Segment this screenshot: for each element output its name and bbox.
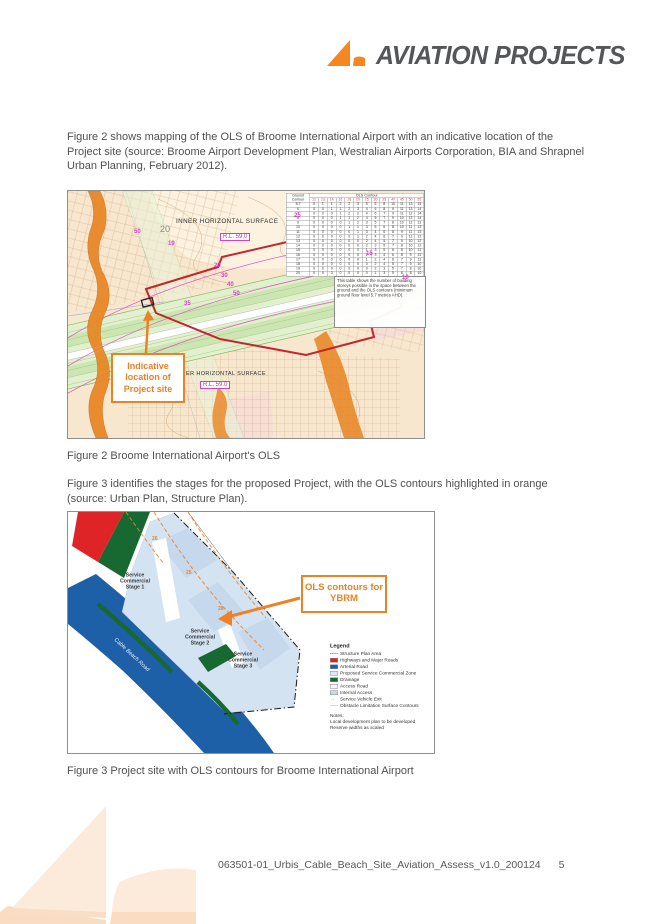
table-corner-header: Ground Contour [286,193,310,202]
legend-swatch-swatch [330,678,338,683]
ols-contour-value-label: 50 [233,291,240,297]
ols-contour-value-label: 10 [402,275,409,281]
figure2-caption: Figure 2 Broome International Airport's … [67,450,280,462]
legend-swatch-swatch [330,684,338,689]
horizontal-surface-label-2: ER HORIZONTAL SURFACE [186,371,266,377]
stage3-label-box: Service Commercial Stage 3 [226,651,260,681]
legend-list: Structure Plan AreaHighways and Major Ro… [330,651,434,710]
stage3-label: Service Commercial Stage 3 [226,651,260,669]
ols-contour-value-label: 40 [227,282,234,288]
legend-swatch-dashed [330,706,338,707]
legend-swatch-swatch [330,671,338,676]
table-cell: 0 [319,271,328,276]
ols-contour-value-label: 19 [168,241,175,247]
legend-swatch-swatch [330,658,338,663]
intro-paragraph: Figure 2 shows mapping of the OLS of Bro… [67,130,589,174]
contour-20-label: 20 [160,224,170,234]
ols-contour-value-label: 25 [186,570,192,576]
stage1-label: Service Commercial Stage 1 [118,572,152,590]
table-note-box: This table shows the number of building … [334,276,426,328]
ols-contour-value-label: 50 [134,229,141,235]
brand-text: AVIATION PROJECTS [376,40,625,71]
rl-59-label: R.L. 59.0 [220,233,250,241]
stage2-label: Service Commercial Stage 2 [183,628,217,646]
ols-contours-callout: OLS contours for YBRM [301,575,387,613]
footer-page-number: 5 [559,859,565,871]
legend-swatch-swatch [330,665,338,670]
ols-contour-value-label: 35 [184,301,191,307]
figure3-map: Cable Beach Road [67,511,435,754]
aviation-projects-logo-icon [326,38,366,73]
watermark-logo-icon [0,794,330,924]
table-note: This table shows the number of building … [335,277,425,299]
inner-horizontal-surface-label: INNER HORIZONTAL SURFACE [176,218,278,225]
brand-logo: AVIATION PROJECTS [326,38,635,73]
legend-item-label: Obstacle Limitation Surface Contours [340,703,419,710]
ols-contour-value-label: 28 [218,606,224,612]
legend-notes: Notes:Local development plan to be devel… [330,713,434,731]
indicative-location-callout: Indicative location of Project site [111,353,185,403]
legend-swatch-arrow: → [330,697,338,702]
ols-contour-value-label: 25 [294,213,301,219]
legend-title: Legend [330,643,434,649]
ols-contour-value-label: 20 [214,263,221,269]
ols-contour-value-label: 30 [221,273,228,279]
legend-swatch-dashdot [330,654,338,655]
document-page: AVIATION PROJECTS Figure 2 shows mapping… [0,0,653,924]
ols-contour-value-label: 26 [152,536,158,542]
figure3-paragraph: Figure 3 identifies the stages for the p… [67,477,589,506]
table-cell: 0 [310,271,319,276]
legend-swatch-swatch [330,691,338,696]
ols-table: Ground ContourOLS Contour121314161820253… [286,193,424,276]
legend-item: Obstacle Limitation Surface Contours [330,703,434,710]
stage2-label-box: Service Commercial Stage 2 [183,628,217,658]
legend: Legend Structure Plan AreaHighways and M… [330,643,434,753]
legend-note-line: Reserve widths as scaled [330,725,434,731]
ground-contour-cell: 20 [286,271,310,276]
figure3-caption: Figure 3 Project site with OLS contours … [67,765,414,777]
ols-table-wrap: Ground ContourOLS Contour121314161820253… [286,193,424,273]
figure2-map: Ground ContourOLS Contour121314161820253… [67,190,425,439]
rl-59-label-2: R.L. 59.0 [200,381,230,389]
ols-contour-value-label: 15 [366,251,373,257]
stage1-label-box: Service Commercial Stage 1 [118,572,152,602]
